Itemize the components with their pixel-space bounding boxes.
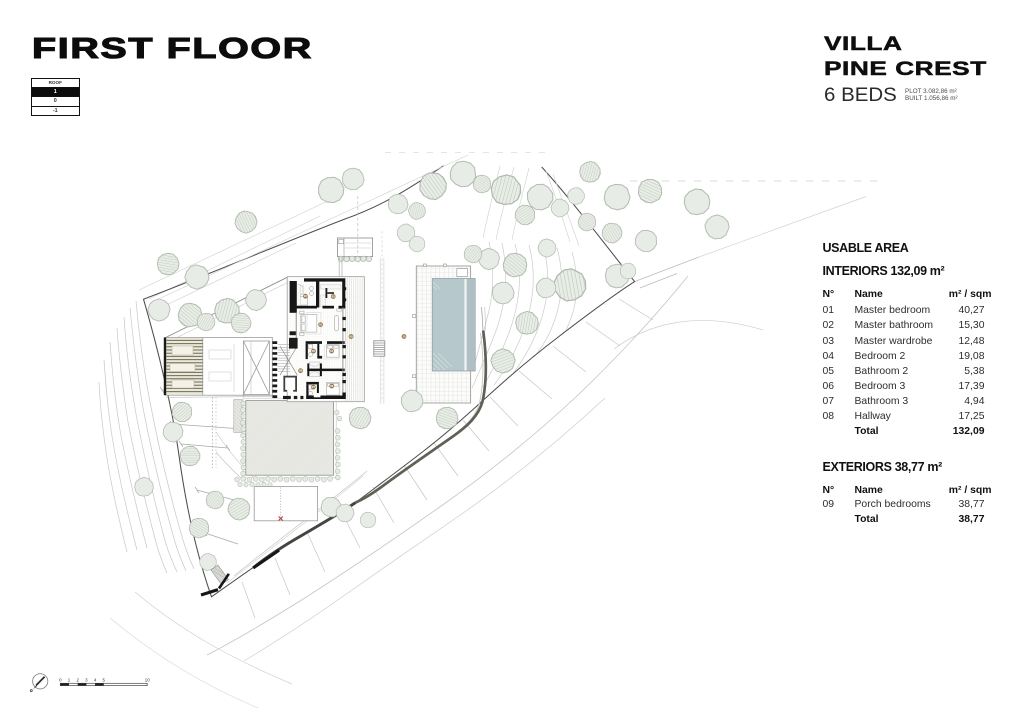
svg-text:06: 06 [330,384,334,388]
svg-text:1: 1 [68,678,71,683]
svg-text:0: 0 [59,678,62,683]
svg-text:10: 10 [402,335,406,339]
svg-text:10: 10 [145,678,150,683]
svg-text:03: 03 [332,295,336,299]
svg-text:4: 4 [94,678,97,683]
svg-text:07: 07 [312,385,316,389]
svg-text:04: 04 [330,349,334,353]
svg-text:08: 08 [299,369,303,373]
svg-text:3: 3 [85,678,88,683]
svg-text:05: 05 [312,349,316,353]
svg-text:02: 02 [304,294,308,298]
svg-text:5: 5 [103,678,106,683]
svg-text:01: 01 [319,323,323,327]
svg-text:2: 2 [76,678,79,683]
svg-text:09: 09 [349,335,353,339]
